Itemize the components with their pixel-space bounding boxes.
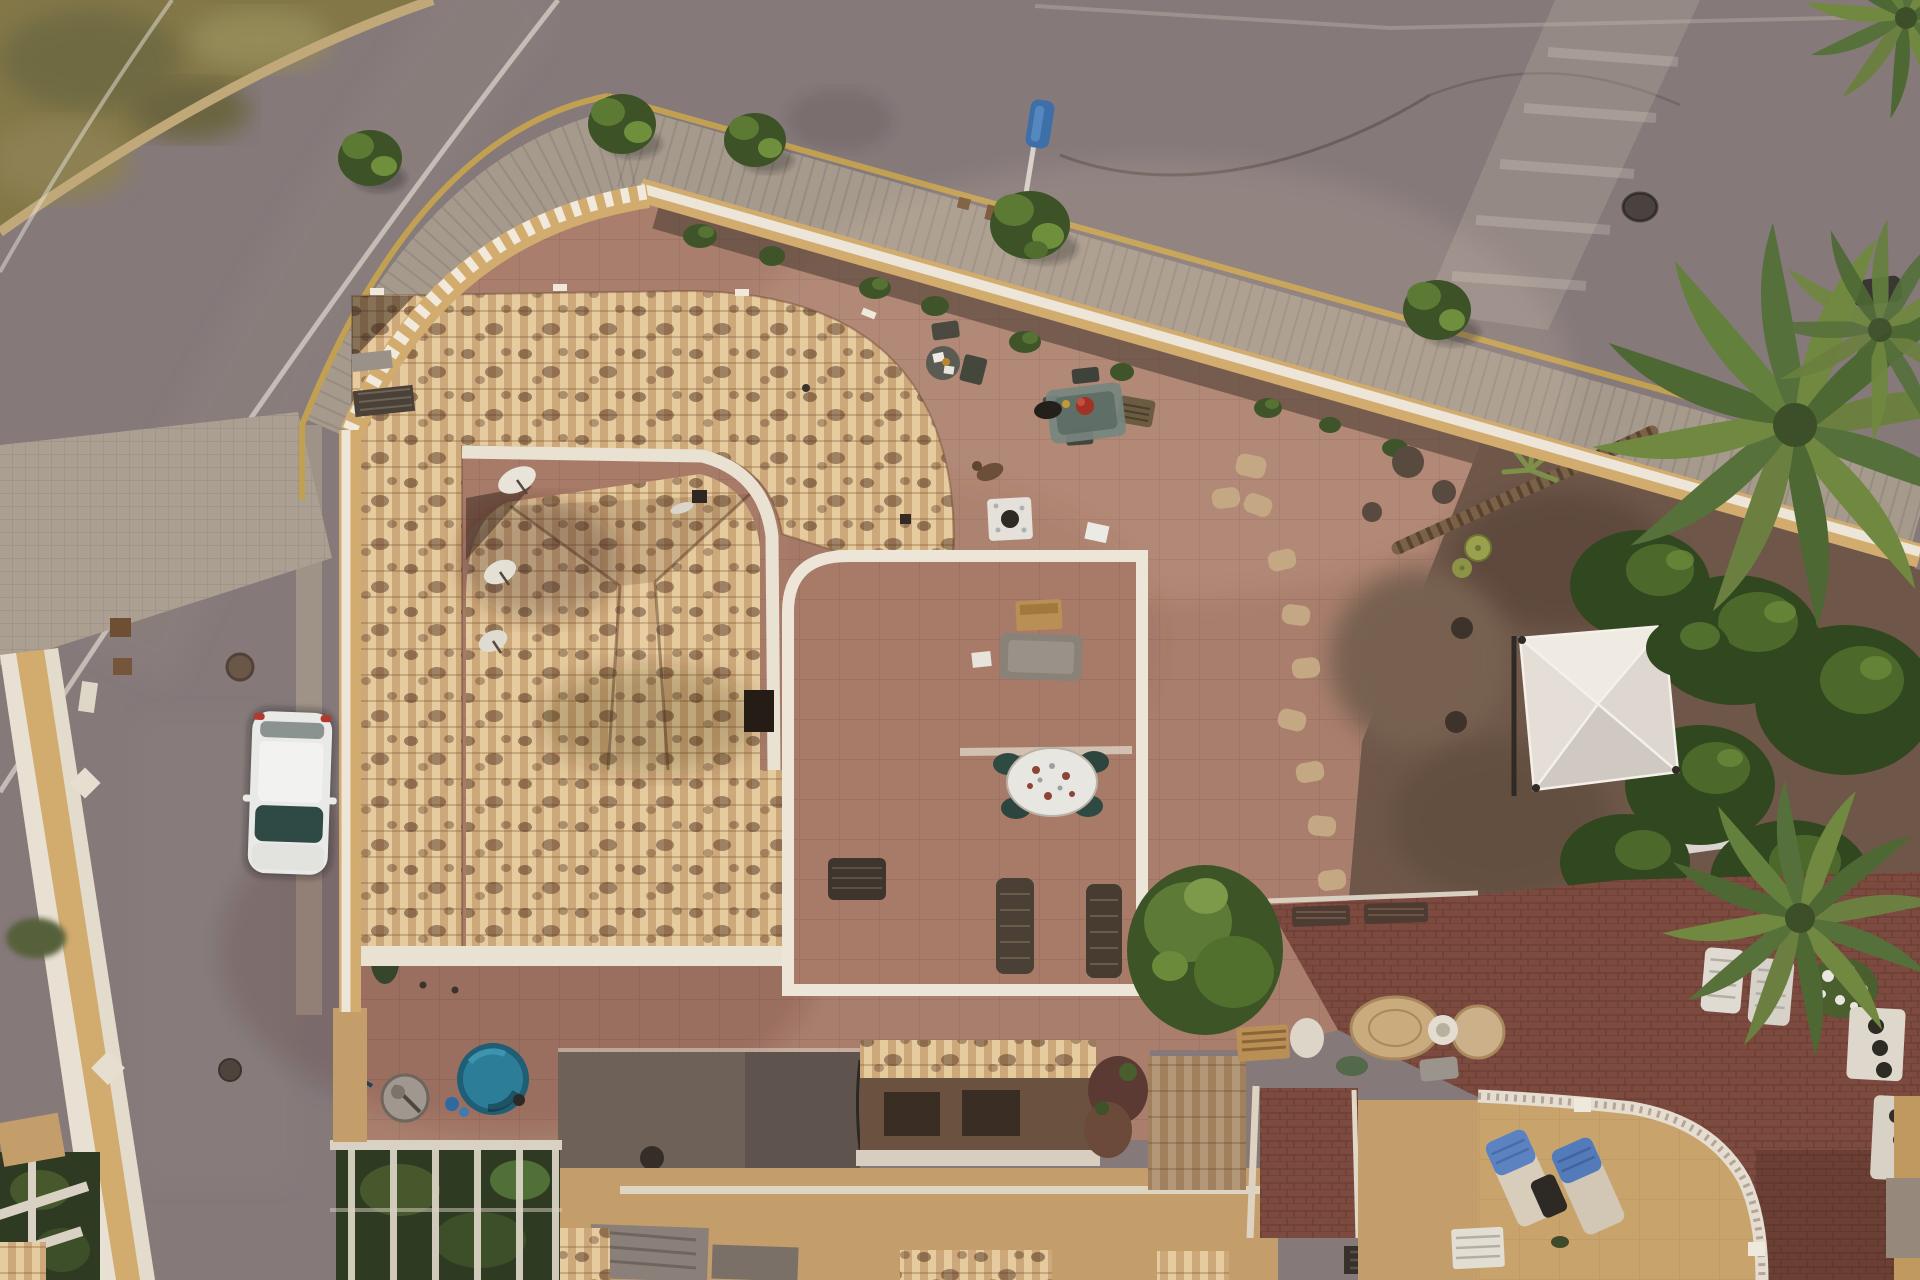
pool-dish [382, 1075, 428, 1121]
storage-crate [1236, 1024, 1290, 1062]
lower-terrace [558, 1048, 862, 1170]
bird [802, 384, 810, 392]
south-eave [350, 946, 790, 966]
aerial-photo-canvas [0, 0, 1920, 1280]
side-table [987, 497, 1033, 541]
roof-terrace [788, 556, 1142, 990]
west-wall-lower [333, 1008, 367, 1142]
stair-opening [744, 690, 774, 732]
aerial-photo [0, 0, 1920, 1280]
pergola [330, 1140, 562, 1280]
slatted-box [1451, 1227, 1505, 1270]
terrace-table [993, 748, 1109, 819]
car-taillight [254, 713, 265, 720]
car-windshield [254, 805, 323, 843]
manhole [1623, 193, 1657, 221]
white-car [240, 706, 340, 879]
garden-tree [1127, 865, 1283, 1035]
chimney [692, 490, 707, 503]
manhole-round [227, 654, 253, 680]
